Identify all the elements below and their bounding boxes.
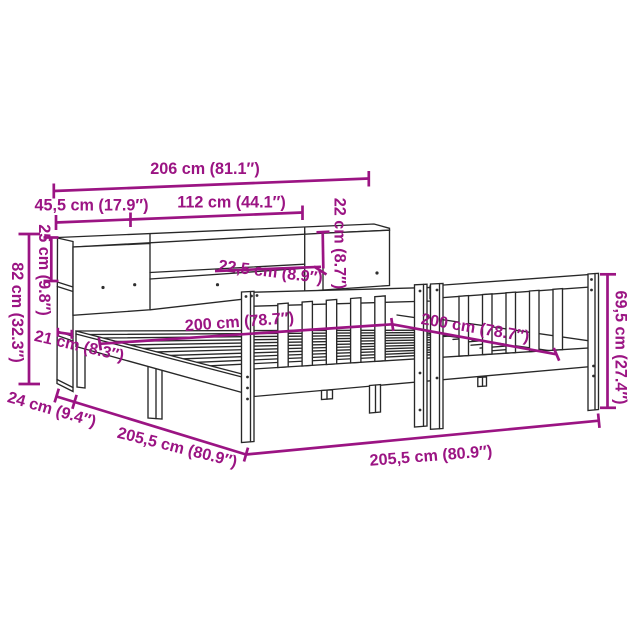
- svg-text:22 cm (8.7″): 22 cm (8.7″): [330, 198, 348, 289]
- svg-text:206 cm (81.1″): 206 cm (81.1″): [150, 160, 259, 178]
- svg-text:25 cm (9.8″): 25 cm (9.8″): [35, 224, 53, 315]
- svg-text:45,5 cm (17.9″): 45,5 cm (17.9″): [35, 197, 149, 215]
- svg-text:69,5 cm (27.4″): 69,5 cm (27.4″): [611, 291, 629, 405]
- svg-text:112 cm (44.1″): 112 cm (44.1″): [177, 194, 286, 212]
- svg-text:82 cm (32.3″): 82 cm (32.3″): [8, 262, 26, 362]
